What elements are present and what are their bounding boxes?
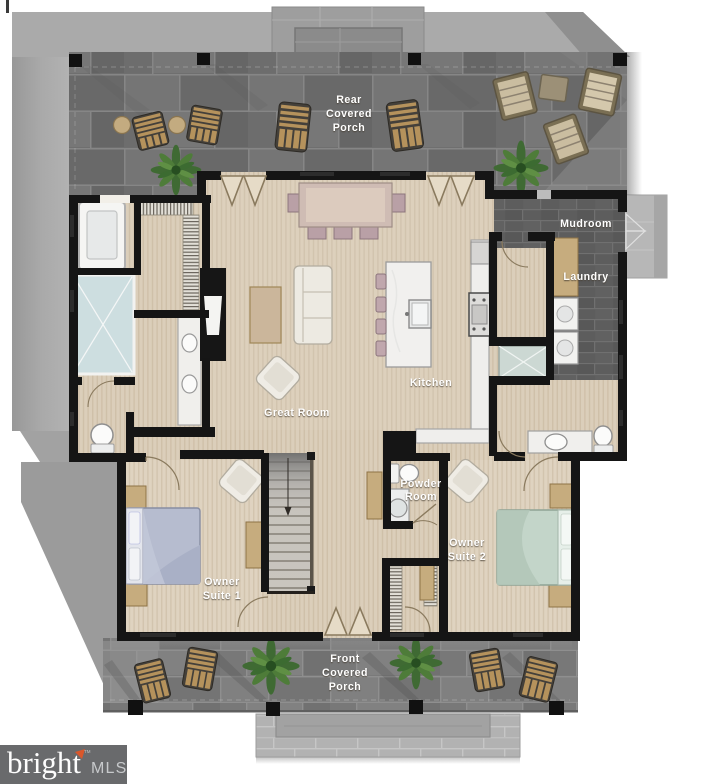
svg-text:bright: bright	[7, 745, 81, 780]
svg-text:Mudroom: Mudroom	[560, 218, 612, 230]
svg-text:Owner: Owner	[204, 576, 239, 588]
svg-text:Kitchen: Kitchen	[410, 377, 452, 389]
svg-text:Porch: Porch	[333, 122, 366, 134]
svg-text:Covered: Covered	[322, 667, 368, 679]
svg-text:TM: TM	[84, 749, 91, 754]
svg-text:Powder: Powder	[400, 478, 441, 490]
svg-text:Owner: Owner	[449, 537, 484, 549]
svg-text:Front: Front	[330, 653, 360, 665]
svg-text:MLS: MLS	[91, 760, 128, 777]
svg-text:Great Room: Great Room	[264, 407, 330, 419]
svg-text:Covered: Covered	[326, 108, 372, 120]
svg-text:Laundry: Laundry	[563, 271, 608, 283]
svg-text:Porch: Porch	[329, 681, 362, 693]
svg-text:Suite 1: Suite 1	[203, 590, 241, 602]
svg-text:Rear: Rear	[336, 94, 362, 106]
svg-text:Suite 2: Suite 2	[448, 551, 486, 563]
svg-text:Room: Room	[405, 491, 437, 503]
